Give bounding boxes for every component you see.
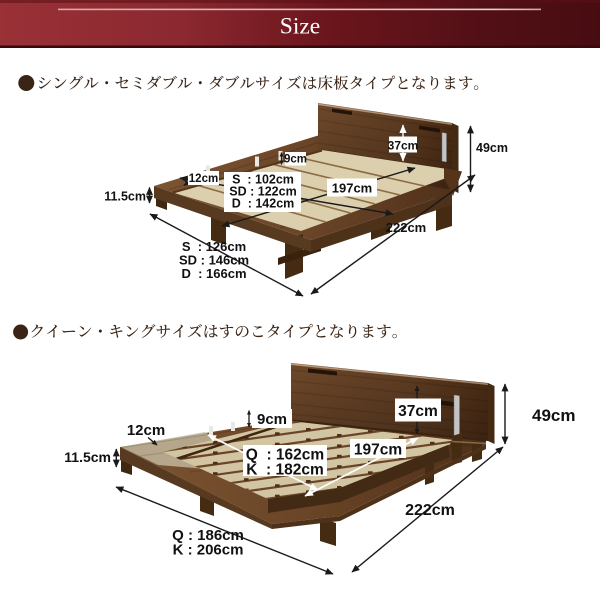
svg-text:12cm: 12cm: [127, 422, 165, 439]
svg-text:37cm: 37cm: [388, 139, 419, 153]
svg-text:11.5cm: 11.5cm: [64, 449, 111, 465]
svg-text:222cm: 222cm: [405, 502, 455, 519]
svg-text:9cm: 9cm: [257, 411, 287, 428]
svg-text:12cm: 12cm: [189, 173, 218, 185]
svg-text:49cm: 49cm: [476, 141, 508, 155]
svg-text:D : 166cm: D : 166cm: [181, 266, 246, 281]
svg-text:197cm: 197cm: [332, 181, 372, 196]
svg-text:37cm: 37cm: [398, 403, 438, 420]
svg-text:D : 142cm: D : 142cm: [232, 197, 295, 211]
svg-text:197cm: 197cm: [354, 442, 402, 459]
svg-text:K : 182cm: K : 182cm: [246, 462, 324, 479]
svg-text:222cm: 222cm: [386, 220, 426, 235]
svg-text:K : 206cm: K : 206cm: [173, 542, 244, 559]
svg-text:11.5cm: 11.5cm: [104, 190, 146, 204]
svg-text:Size: Size: [280, 14, 320, 40]
svg-text:9cm: 9cm: [284, 154, 307, 166]
svg-text:49cm: 49cm: [532, 406, 575, 425]
